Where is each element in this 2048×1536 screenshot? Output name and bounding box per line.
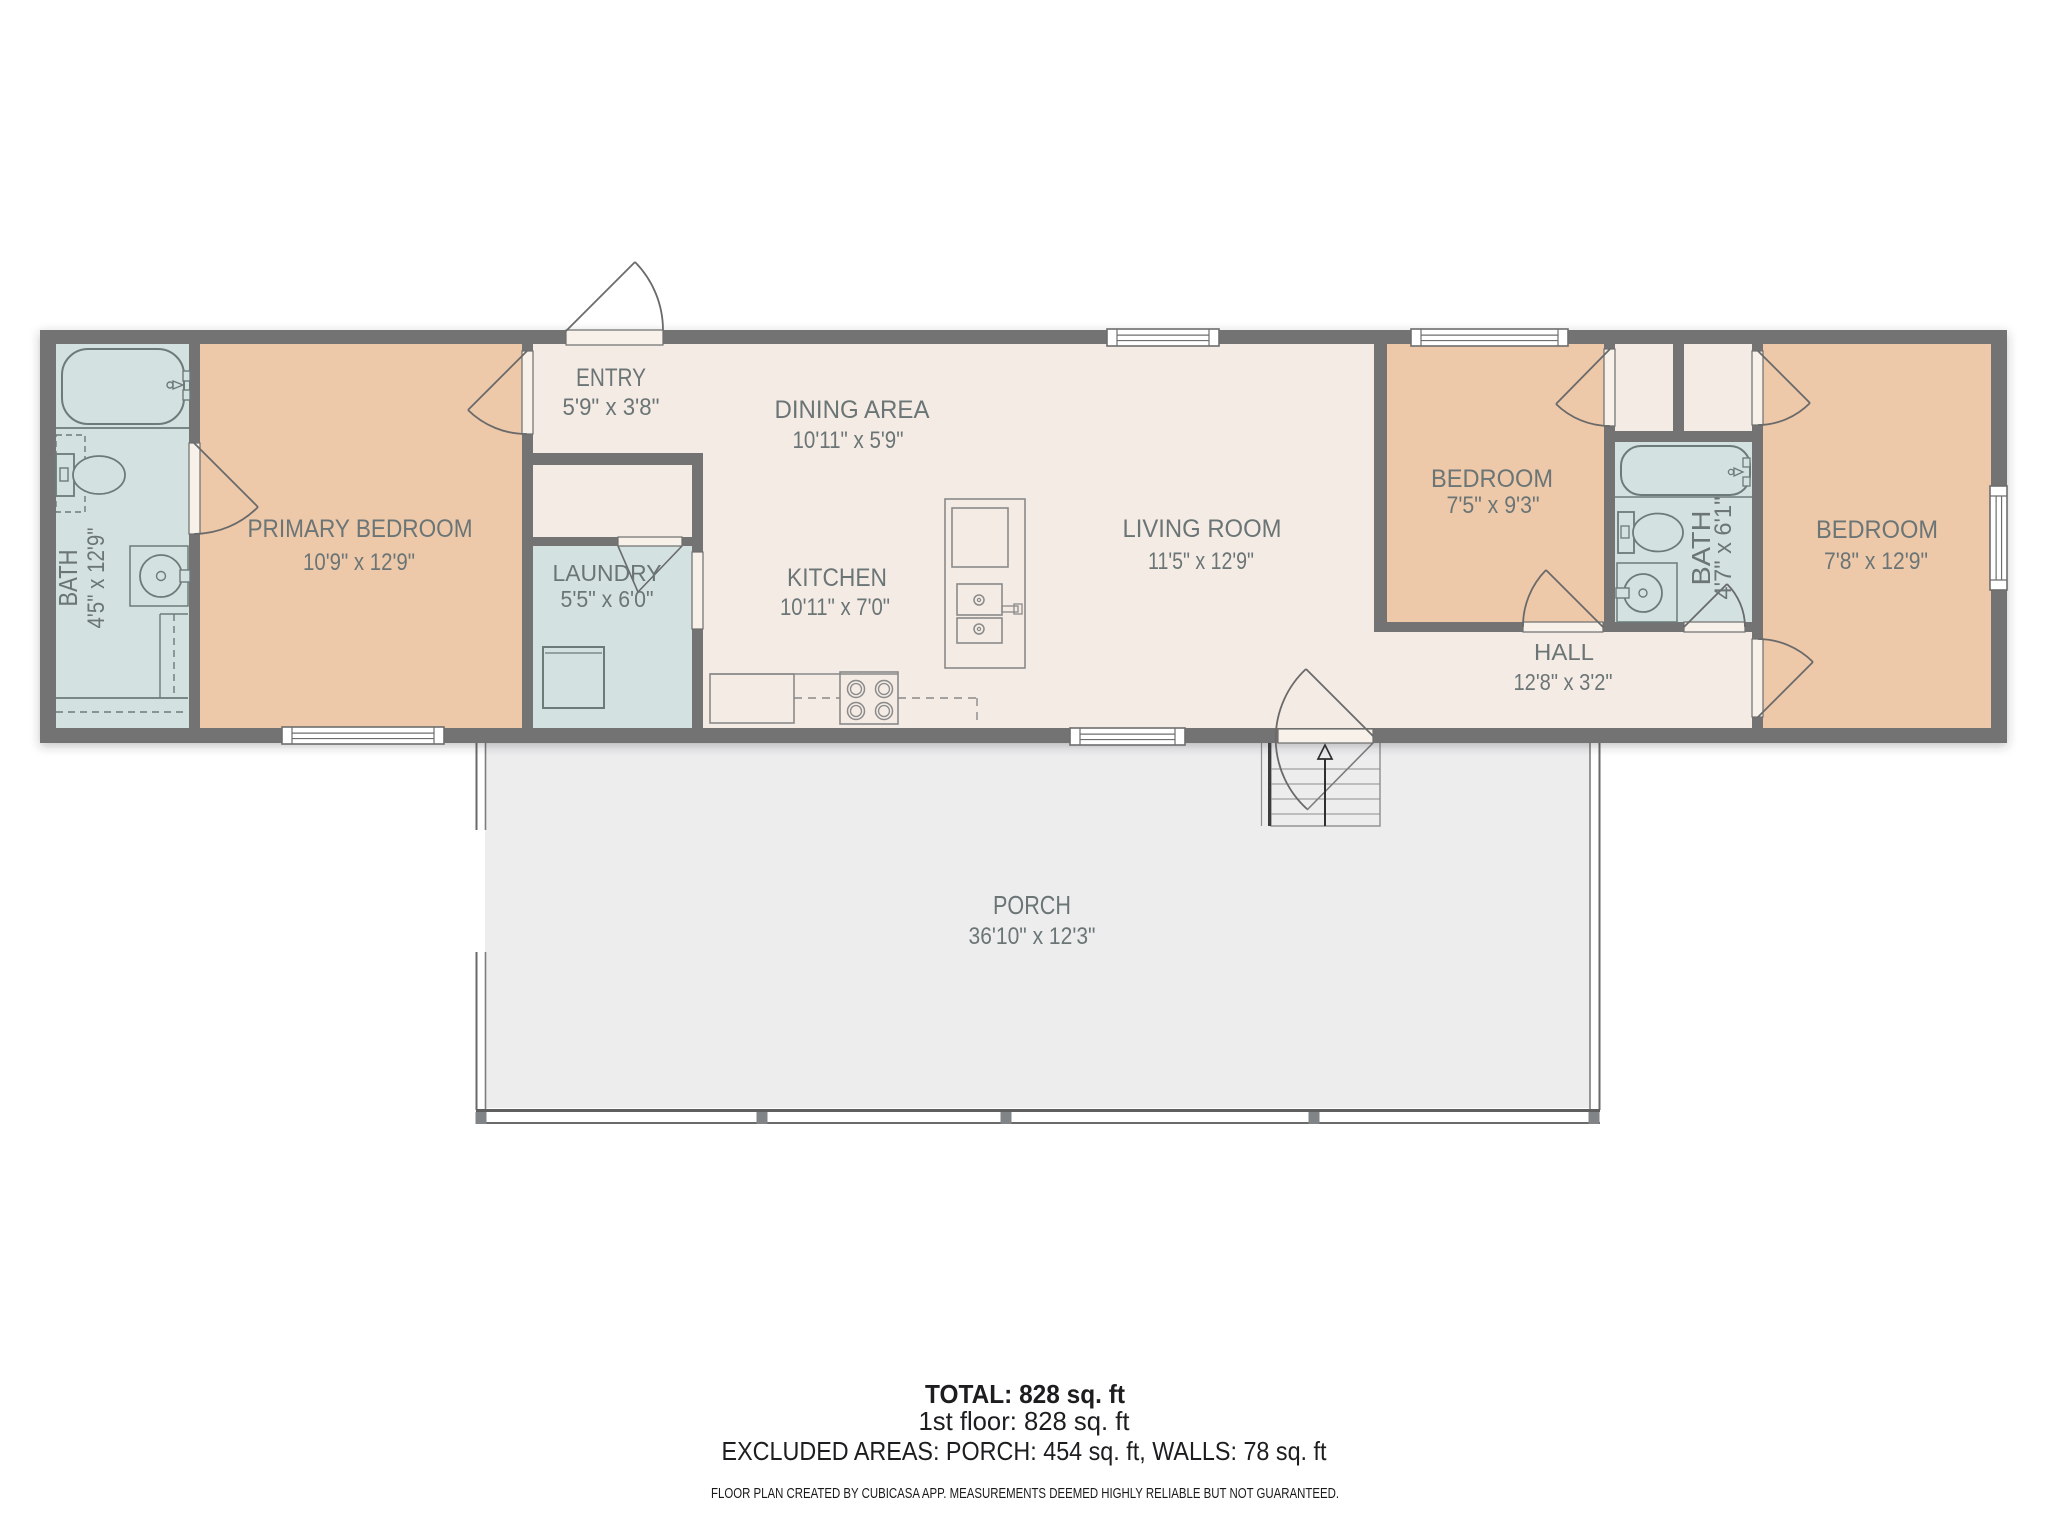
svg-text:LAUNDRY: LAUNDRY (553, 560, 662, 586)
svg-text:LIVING ROOM: LIVING ROOM (1123, 515, 1282, 543)
svg-text:10'11" x 5'9": 10'11" x 5'9" (793, 427, 904, 454)
svg-text:PORCH: PORCH (993, 890, 1071, 920)
svg-text:HALL: HALL (1534, 639, 1594, 665)
svg-text:1st floor: 828 sq. ft: 1st floor: 828 sq. ft (919, 1406, 1131, 1436)
svg-text:BEDROOM: BEDROOM (1431, 465, 1553, 493)
svg-text:12'8" x 3'2": 12'8" x 3'2" (1514, 669, 1613, 695)
svg-text:36'10" x 12'3": 36'10" x 12'3" (969, 923, 1096, 950)
svg-text:4'5" x 12'9": 4'5" x 12'9" (83, 528, 110, 629)
svg-text:4'7" x 6'1": 4'7" x 6'1" (1710, 497, 1737, 600)
svg-text:10'11" x 7'0": 10'11" x 7'0" (780, 594, 890, 621)
svg-text:7'8" x 12'9": 7'8" x 12'9" (1824, 548, 1928, 575)
svg-text:EXCLUDED AREAS: PORCH: 454 sq.: EXCLUDED AREAS: PORCH: 454 sq. ft, WALLS… (722, 1436, 1328, 1466)
svg-text:5'5" x 6'0": 5'5" x 6'0" (561, 586, 654, 612)
svg-text:11'5" x 12'9": 11'5" x 12'9" (1148, 548, 1254, 575)
svg-text:DINING AREA: DINING AREA (775, 396, 930, 424)
svg-text:BATH: BATH (53, 550, 83, 607)
svg-text:BEDROOM: BEDROOM (1816, 516, 1938, 544)
svg-text:5'9" x 3'8": 5'9" x 3'8" (563, 394, 660, 421)
svg-text:10'9" x 12'9": 10'9" x 12'9" (303, 549, 415, 576)
svg-text:KITCHEN: KITCHEN (787, 564, 887, 592)
svg-text:ENTRY: ENTRY (576, 364, 646, 392)
svg-text:7'5" x 9'3": 7'5" x 9'3" (1447, 492, 1540, 519)
svg-text:TOTAL: 828 sq. ft: TOTAL: 828 sq. ft (925, 1379, 1125, 1409)
svg-text:FLOOR PLAN CREATED BY CUBICASA: FLOOR PLAN CREATED BY CUBICASA APP. MEAS… (711, 1486, 1339, 1502)
svg-text:PRIMARY BEDROOM: PRIMARY BEDROOM (248, 515, 473, 543)
